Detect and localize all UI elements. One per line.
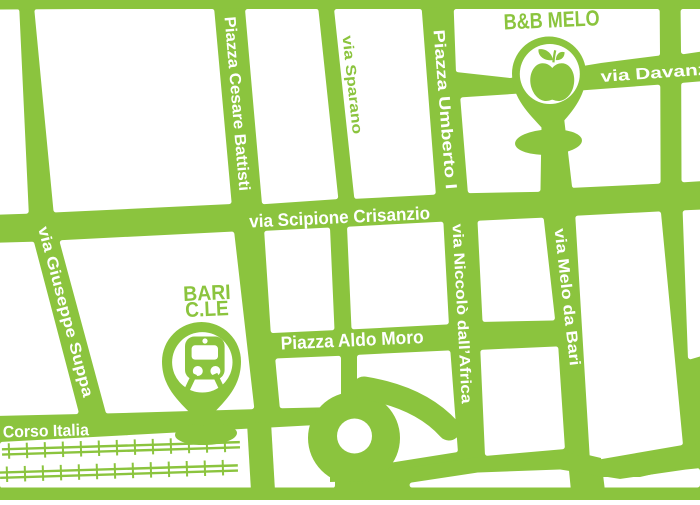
svg-text:B&B MELO: B&B MELO — [503, 5, 600, 34]
svg-text:Corso Italia: Corso Italia — [3, 421, 90, 441]
svg-text:C.LE: C.LE — [185, 297, 229, 322]
